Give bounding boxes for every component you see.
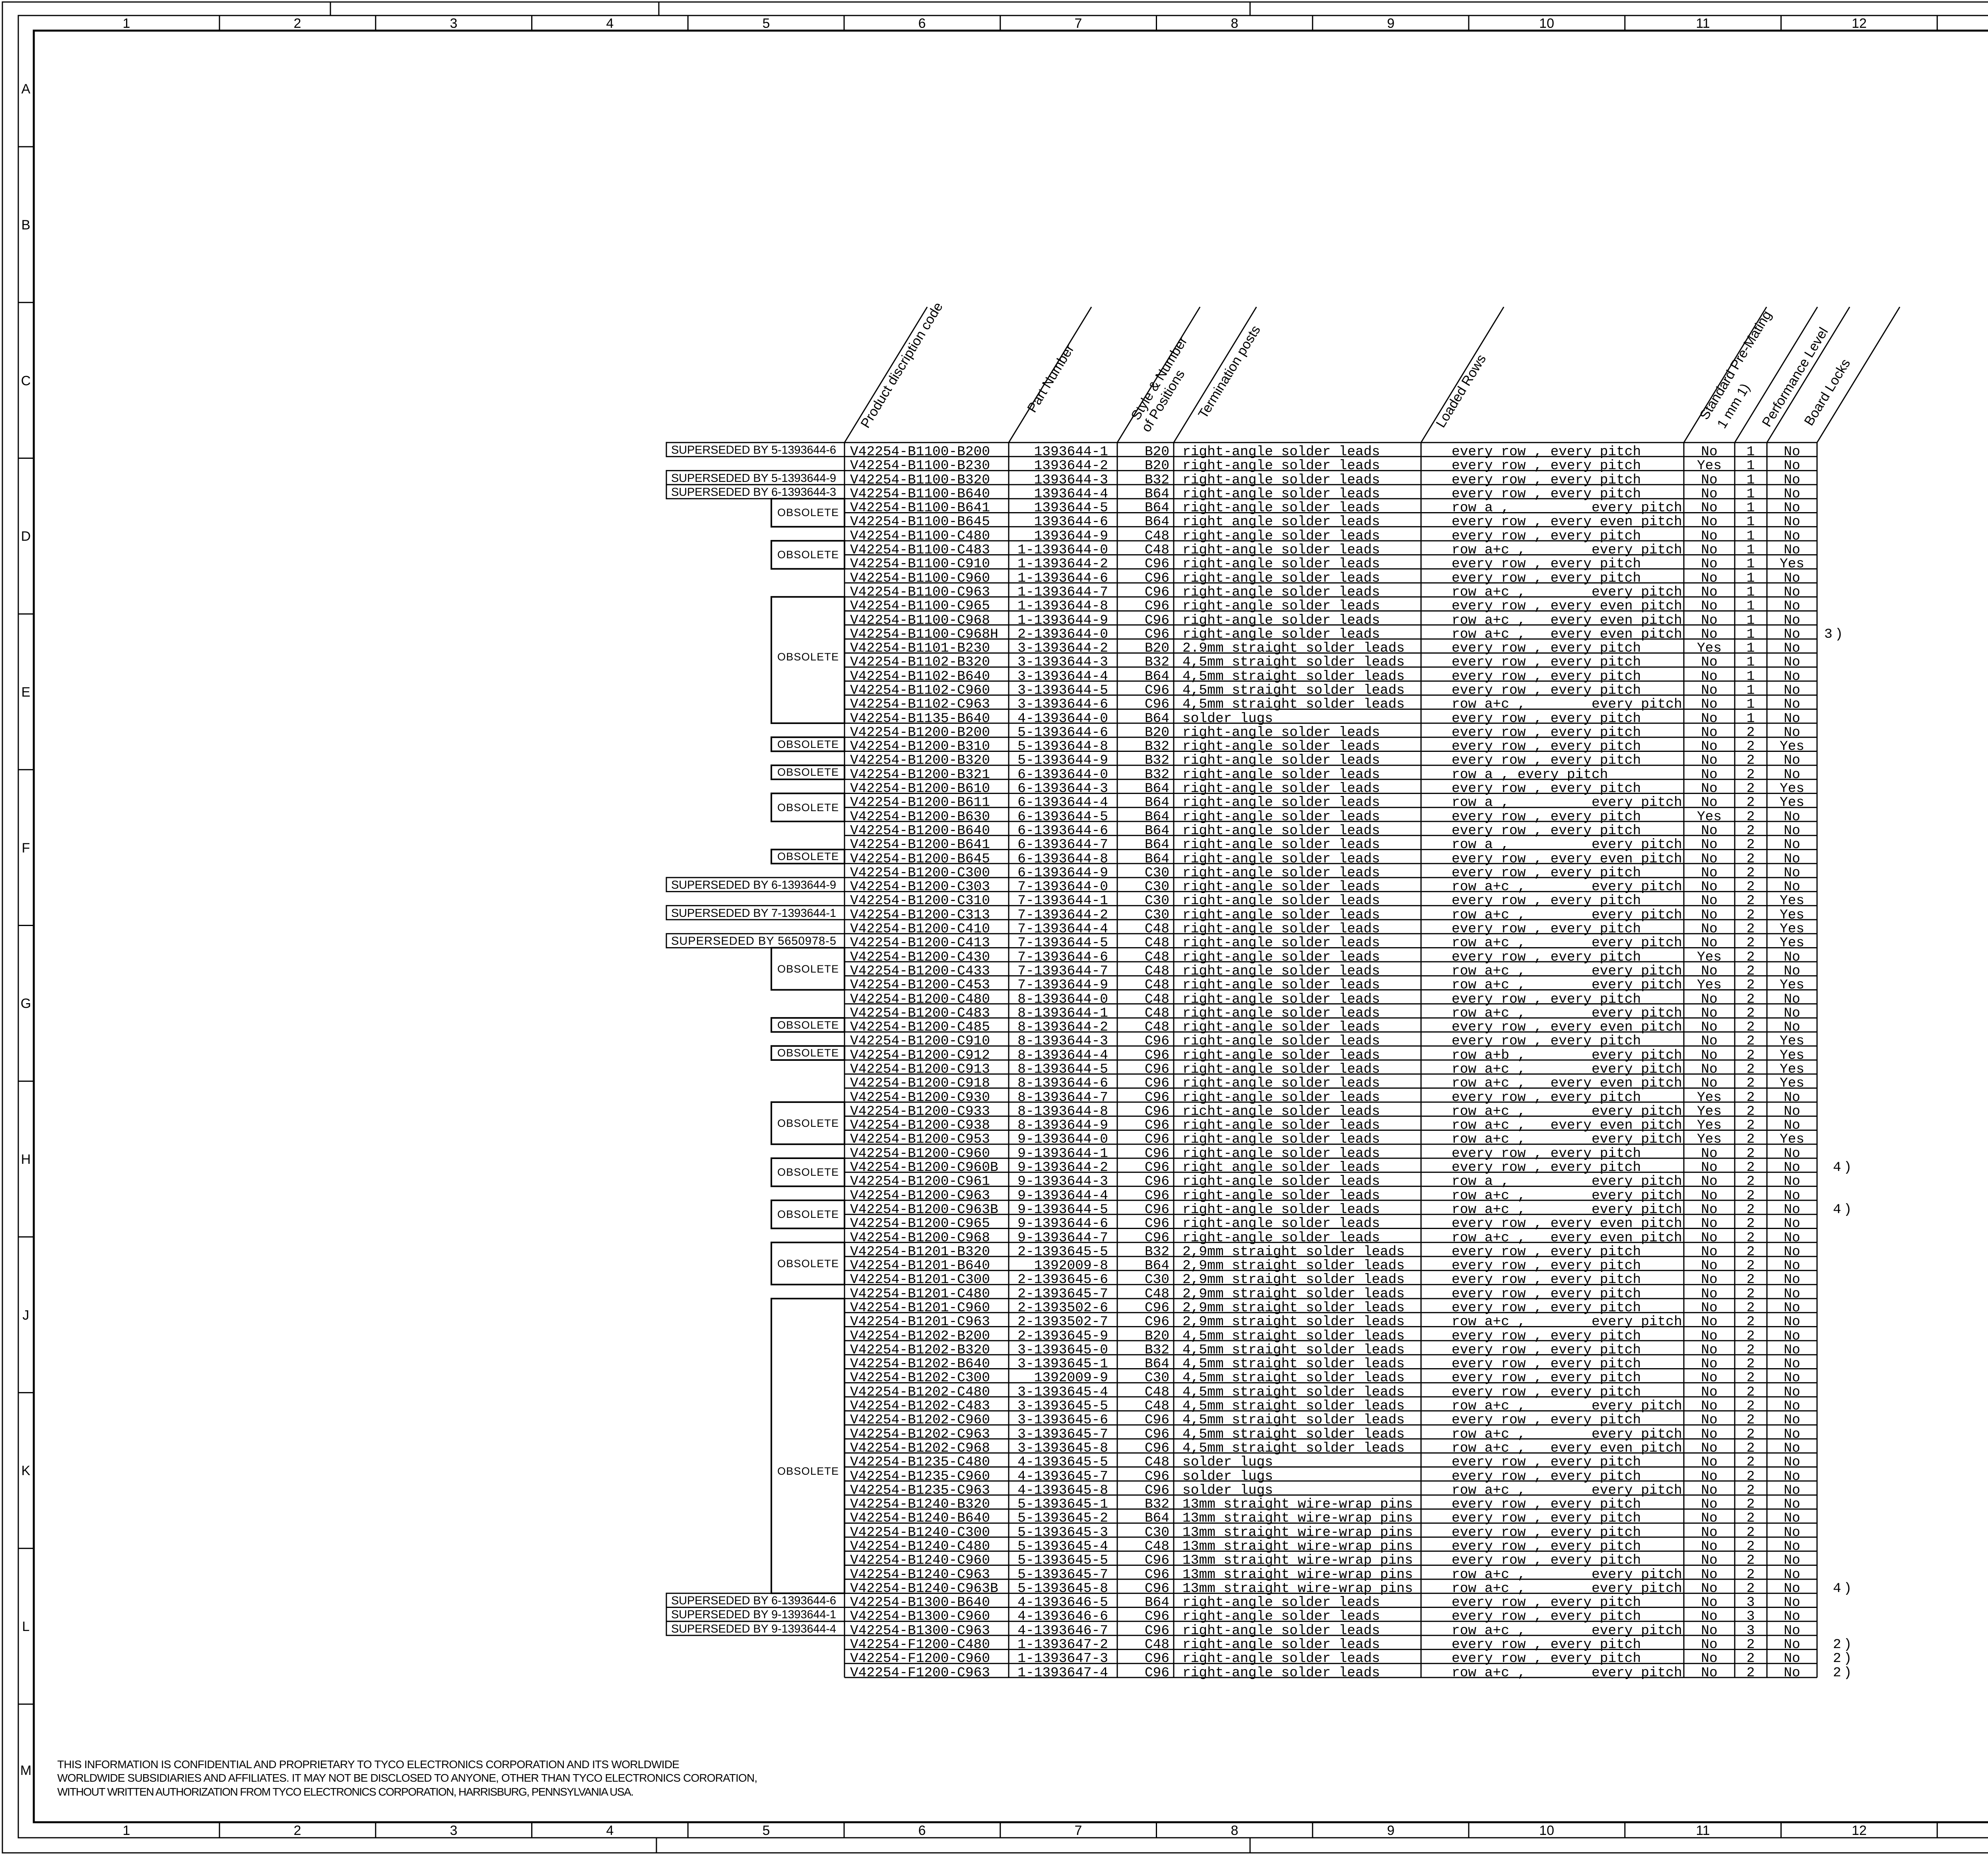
svg-text:1: 1	[1747, 542, 1755, 558]
svg-text:V42254-B1300-C960: V42254-B1300-C960	[850, 1609, 990, 1624]
svg-text:1: 1	[1747, 598, 1755, 614]
svg-text:No: No	[1784, 1160, 1800, 1175]
svg-text:V42254-B1100-C960: V42254-B1100-C960	[850, 571, 990, 586]
svg-text:L: L	[22, 1619, 30, 1634]
svg-text:No: No	[1701, 1258, 1717, 1274]
svg-text:2: 2	[1747, 1469, 1755, 1484]
svg-text:No: No	[1701, 837, 1717, 852]
svg-text:SUPERSEDED BY 5-1393644-6: SUPERSEDED BY 5-1393644-6	[671, 444, 836, 456]
svg-text:No: No	[1701, 1412, 1717, 1428]
svg-text:6-1393644-0: 6-1393644-0	[1017, 767, 1108, 782]
svg-text:No: No	[1701, 851, 1717, 867]
svg-text:No: No	[1784, 1090, 1800, 1105]
svg-text:No: No	[1701, 1595, 1717, 1610]
svg-text:No: No	[1784, 697, 1800, 712]
svg-text:No: No	[1784, 1370, 1800, 1386]
svg-text:No: No	[1784, 1567, 1800, 1582]
svg-text:C96: C96	[1145, 1412, 1169, 1428]
svg-text:row a+c , every pitch: row a+c , every pitch	[1452, 1427, 1682, 1442]
svg-text:No: No	[1701, 514, 1717, 530]
svg-text:No: No	[1784, 542, 1800, 558]
svg-text:1: 1	[1747, 528, 1755, 544]
svg-text:every row , every pitch: every row , every pitch	[1452, 1342, 1641, 1358]
svg-text:7-1393644-6: 7-1393644-6	[1017, 949, 1108, 965]
svg-text:row a+c , every pitch: row a+c , every pitch	[1452, 977, 1682, 993]
svg-text:C96: C96	[1145, 1651, 1169, 1666]
svg-text:No: No	[1701, 1637, 1717, 1652]
svg-text:8-1393644-1: 8-1393644-1	[1017, 1006, 1108, 1021]
svg-text:5-1393645-8: 5-1393645-8	[1017, 1581, 1108, 1596]
svg-text:3-1393644-4: 3-1393644-4	[1017, 669, 1108, 684]
svg-text:V42254-B1200-C313: V42254-B1200-C313	[850, 907, 990, 923]
svg-text:1: 1	[123, 16, 130, 31]
svg-text:right-angle solder leads: right-angle solder leads	[1182, 1132, 1380, 1147]
svg-text:4,5mm straight solder leads: 4,5mm straight solder leads	[1182, 654, 1405, 670]
svg-text:7-1393644-4: 7-1393644-4	[1017, 921, 1108, 937]
svg-text:every row , every pitch: every row , every pitch	[1452, 669, 1641, 684]
svg-text:V42254-F1200-C963: V42254-F1200-C963	[850, 1665, 990, 1681]
svg-text:V42254-B1200-C965: V42254-B1200-C965	[850, 1216, 990, 1231]
svg-text:No: No	[1701, 711, 1717, 726]
svg-text:No: No	[1784, 711, 1800, 726]
svg-text:No: No	[1784, 1216, 1800, 1231]
svg-text:right-angle solder leads: right-angle solder leads	[1182, 1651, 1380, 1666]
svg-text:1-1393647-3: 1-1393647-3	[1017, 1651, 1108, 1666]
svg-text:No: No	[1784, 1258, 1800, 1274]
svg-text:V42254-B1100-C963: V42254-B1100-C963	[850, 584, 990, 600]
svg-text:10: 10	[1539, 1823, 1554, 1838]
svg-text:every row , every pitch: every row , every pitch	[1452, 865, 1641, 881]
svg-text:V42254-B1100-C968H: V42254-B1100-C968H	[850, 627, 998, 642]
svg-text:9-1393644-4: 9-1393644-4	[1017, 1188, 1108, 1204]
svg-text:No: No	[1784, 1398, 1800, 1414]
svg-text:C48: C48	[1145, 1286, 1169, 1302]
svg-text:M: M	[20, 1763, 31, 1778]
svg-text:9: 9	[1387, 16, 1395, 31]
svg-text:No: No	[1701, 739, 1717, 754]
svg-text:No: No	[1701, 1188, 1717, 1204]
svg-text:Yes: Yes	[1697, 458, 1722, 474]
svg-text:right-angle solder leads: right-angle solder leads	[1182, 1637, 1380, 1652]
svg-text:2: 2	[1747, 949, 1755, 965]
svg-text:3-1393645-8: 3-1393645-8	[1017, 1441, 1108, 1456]
svg-text:C96: C96	[1145, 1090, 1169, 1105]
svg-text:2: 2	[1747, 767, 1755, 782]
svg-text:No: No	[1701, 1048, 1717, 1063]
svg-text:right-angle solder leads: right-angle solder leads	[1182, 472, 1380, 488]
svg-text:1393644-4: 1393644-4	[1034, 486, 1108, 502]
svg-text:Yes: Yes	[1697, 1118, 1722, 1133]
svg-text:V42254-B1200-C961: V42254-B1200-C961	[850, 1174, 990, 1189]
svg-text:J: J	[23, 1308, 29, 1323]
svg-text:C96: C96	[1145, 683, 1169, 698]
svg-text:right-angle solder leads: right-angle solder leads	[1182, 1174, 1380, 1189]
svg-text:1: 1	[1747, 571, 1755, 586]
svg-text:13mm straight wire-wrap pins: 13mm straight wire-wrap pins	[1182, 1553, 1413, 1568]
svg-text:No: No	[1784, 1188, 1800, 1204]
svg-text:9-1393644-2: 9-1393644-2	[1017, 1160, 1108, 1175]
svg-text:right-angle solder leads: right-angle solder leads	[1182, 879, 1380, 895]
svg-text:No: No	[1701, 1553, 1717, 1568]
svg-text:2: 2	[1747, 1567, 1755, 1582]
svg-text:V42254-B1200-C912: V42254-B1200-C912	[850, 1048, 990, 1063]
svg-text:6: 6	[918, 1823, 926, 1838]
svg-text:1: 1	[1747, 654, 1755, 670]
svg-text:C96: C96	[1145, 1216, 1169, 1231]
svg-text:2: 2	[1747, 1272, 1755, 1287]
svg-text:OBSOLETE: OBSOLETE	[777, 1258, 839, 1270]
svg-text:right-angle solder leads: right-angle solder leads	[1182, 1609, 1380, 1624]
svg-text:2: 2	[1747, 1398, 1755, 1414]
svg-text:No: No	[1701, 1033, 1717, 1049]
svg-text:V42254-B1202-C960: V42254-B1202-C960	[850, 1412, 990, 1428]
svg-text:No: No	[1784, 1609, 1800, 1624]
svg-text:9-1393644-1: 9-1393644-1	[1017, 1146, 1108, 1161]
svg-text:C48: C48	[1145, 1019, 1169, 1035]
svg-text:2: 2	[1747, 1202, 1755, 1217]
svg-text:Yes: Yes	[1780, 921, 1804, 937]
svg-text:1-1393644-0: 1-1393644-0	[1017, 542, 1108, 558]
svg-text:V42254-B1202-C300: V42254-B1202-C300	[850, 1370, 990, 1386]
svg-text:row a , every pitch: row a , every pitch	[1452, 837, 1682, 852]
svg-text:2-1393644-0: 2-1393644-0	[1017, 627, 1108, 642]
svg-text:B64: B64	[1145, 851, 1169, 867]
svg-text:C96: C96	[1145, 1174, 1169, 1189]
svg-text:2: 2	[1747, 1033, 1755, 1049]
svg-text:4-1393645-5: 4-1393645-5	[1017, 1454, 1108, 1470]
svg-text:every row , every pitch: every row , every pitch	[1452, 571, 1641, 586]
svg-text:No: No	[1701, 1006, 1717, 1021]
svg-text:right-angle solder leads: right-angle solder leads	[1182, 865, 1380, 881]
svg-text:9-1393644-6: 9-1393644-6	[1017, 1216, 1108, 1231]
svg-text:No: No	[1701, 1244, 1717, 1260]
svg-text:V42254-B1200-C910: V42254-B1200-C910	[850, 1033, 990, 1049]
svg-text:row a+c , every pitch: row a+c , every pitch	[1452, 1483, 1682, 1498]
svg-text:No: No	[1701, 1019, 1717, 1035]
svg-text:C48: C48	[1145, 949, 1169, 965]
svg-text:4,5mm straight solder leads: 4,5mm straight solder leads	[1182, 1356, 1405, 1372]
svg-text:4,5mm straight solder leads: 4,5mm straight solder leads	[1182, 1427, 1405, 1442]
svg-text:V42254-B1200-C960: V42254-B1200-C960	[850, 1146, 990, 1161]
svg-text:2: 2	[1747, 865, 1755, 881]
svg-text:OBSOLETE: OBSOLETE	[777, 738, 839, 750]
svg-text:right-angle solder leads: right-angle solder leads	[1182, 753, 1380, 768]
svg-text:No: No	[1784, 683, 1800, 698]
svg-text:V42254-B1200-C960B: V42254-B1200-C960B	[850, 1160, 998, 1175]
svg-text:right-angle solder leads: right-angle solder leads	[1182, 1230, 1380, 1246]
svg-text:B64: B64	[1145, 1356, 1169, 1372]
svg-text:V42254-B1100-B640: V42254-B1100-B640	[850, 486, 990, 502]
svg-text:Yes: Yes	[1697, 641, 1722, 656]
svg-text:every row , every even pitch: every row , every even pitch	[1452, 1019, 1682, 1035]
svg-text:1: 1	[1747, 556, 1755, 572]
svg-text:F: F	[22, 841, 30, 856]
svg-text:7-1393644-7: 7-1393644-7	[1017, 963, 1108, 979]
svg-text:V42254-B1201-C963: V42254-B1201-C963	[850, 1314, 990, 1330]
svg-text:V42254-B1202-C963: V42254-B1202-C963	[850, 1427, 990, 1442]
svg-text:B64: B64	[1145, 823, 1169, 839]
svg-text:right-angle solder leads: right-angle solder leads	[1182, 458, 1380, 474]
svg-text:V42254-B1200-B200: V42254-B1200-B200	[850, 725, 990, 740]
svg-text:2-1393645-6: 2-1393645-6	[1017, 1272, 1108, 1287]
svg-text:B64: B64	[1145, 837, 1169, 852]
svg-text:5-1393645-3: 5-1393645-3	[1017, 1525, 1108, 1540]
svg-text:No: No	[1784, 1412, 1800, 1428]
svg-text:6-1393644-3: 6-1393644-3	[1017, 781, 1108, 796]
svg-text:C96: C96	[1145, 1567, 1169, 1582]
svg-text:Yes: Yes	[1697, 1090, 1722, 1105]
svg-text:right-angle solder leads: right-angle solder leads	[1182, 500, 1380, 516]
svg-text:C30: C30	[1145, 907, 1169, 923]
svg-text:2: 2	[1747, 1384, 1755, 1400]
svg-text:2: 2	[1747, 1553, 1755, 1568]
svg-text:5-1393644-9: 5-1393644-9	[1017, 753, 1108, 768]
svg-text:C96: C96	[1145, 1118, 1169, 1133]
svg-text:every row , every pitch: every row , every pitch	[1452, 949, 1641, 965]
svg-text:4-1393645-7: 4-1393645-7	[1017, 1469, 1108, 1484]
svg-text:B20: B20	[1145, 458, 1169, 474]
svg-text:C96: C96	[1145, 1314, 1169, 1330]
svg-text:No: No	[1701, 1427, 1717, 1442]
svg-text:C96: C96	[1145, 1202, 1169, 1217]
svg-text:4-1393645-8: 4-1393645-8	[1017, 1483, 1108, 1498]
svg-text:No: No	[1784, 514, 1800, 530]
svg-text:right-angle solder leads: right-angle solder leads	[1182, 837, 1380, 852]
svg-text:right-angle solder leads: right-angle solder leads	[1182, 739, 1380, 754]
svg-text:6: 6	[918, 16, 926, 31]
svg-text:V42254-B1102-C963: V42254-B1102-C963	[850, 697, 990, 712]
svg-text:5-1393645-2: 5-1393645-2	[1017, 1511, 1108, 1526]
svg-text:2-1393645-9: 2-1393645-9	[1017, 1328, 1108, 1344]
svg-text:SUPERSEDED BY 6-1393644-3: SUPERSEDED BY 6-1393644-3	[671, 486, 836, 499]
svg-text:V42254-B1235-C960: V42254-B1235-C960	[850, 1469, 990, 1484]
svg-text:every row , every pitch: every row , every pitch	[1452, 1384, 1641, 1400]
svg-text:every row , every pitch: every row , every pitch	[1452, 472, 1641, 488]
svg-text:1393644-9: 1393644-9	[1034, 528, 1108, 544]
svg-text:V42254-B1200-C453: V42254-B1200-C453	[850, 977, 990, 993]
svg-text:right-angle solder leads: right-angle solder leads	[1182, 935, 1380, 951]
svg-text:No: No	[1701, 528, 1717, 544]
svg-text:No: No	[1784, 669, 1800, 684]
svg-text:1: 1	[1747, 683, 1755, 698]
svg-text:V42254-B1300-C963: V42254-B1300-C963	[850, 1623, 990, 1639]
svg-text:3-1393645-1: 3-1393645-1	[1017, 1356, 1108, 1372]
svg-text:OBSOLETE: OBSOLETE	[777, 766, 839, 778]
svg-text:V42254-B1200-B321: V42254-B1200-B321	[850, 767, 990, 782]
svg-text:right-angle solder leads: right-angle solder leads	[1182, 627, 1380, 642]
svg-text:4,5mm straight solder leads: 4,5mm straight solder leads	[1182, 1342, 1405, 1358]
svg-text:B32: B32	[1145, 1497, 1169, 1512]
svg-text:every row , every pitch: every row , every pitch	[1452, 921, 1641, 937]
svg-text:No: No	[1784, 571, 1800, 586]
svg-text:No: No	[1701, 1441, 1717, 1456]
svg-text:No: No	[1784, 809, 1800, 825]
svg-text:B32: B32	[1145, 1244, 1169, 1260]
svg-text:V42254-B1200-C938: V42254-B1200-C938	[850, 1118, 990, 1133]
svg-text:2: 2	[1747, 1230, 1755, 1246]
svg-text:2: 2	[1747, 1497, 1755, 1512]
svg-text:8-1393644-6: 8-1393644-6	[1017, 1076, 1108, 1091]
svg-text:2-1393502-6: 2-1393502-6	[1017, 1300, 1108, 1316]
svg-text:No: No	[1701, 654, 1717, 670]
svg-text:2: 2	[1747, 1160, 1755, 1175]
svg-text:Yes: Yes	[1780, 795, 1804, 810]
svg-text:B64: B64	[1145, 1258, 1169, 1274]
svg-text:C96: C96	[1145, 1132, 1169, 1147]
svg-text:C96: C96	[1145, 556, 1169, 572]
svg-text:V42254-B1235-C963: V42254-B1235-C963	[850, 1483, 990, 1498]
svg-text:No: No	[1784, 1272, 1800, 1287]
svg-text:C96: C96	[1145, 1483, 1169, 1498]
svg-text:B20: B20	[1145, 641, 1169, 656]
svg-text:No: No	[1701, 1342, 1717, 1358]
svg-text:No: No	[1701, 1567, 1717, 1582]
svg-text:No: No	[1784, 641, 1800, 656]
svg-text:9-1393644-0: 9-1393644-0	[1017, 1132, 1108, 1147]
svg-text:Yes: Yes	[1780, 739, 1804, 754]
svg-text:every row , every pitch: every row , every pitch	[1452, 1553, 1641, 1568]
svg-text:2: 2	[1747, 795, 1755, 810]
svg-text:2: 2	[1747, 851, 1755, 867]
svg-text:V42254-B1202-B200: V42254-B1202-B200	[850, 1328, 990, 1344]
svg-text:No: No	[1701, 753, 1717, 768]
svg-text:No: No	[1784, 1104, 1800, 1119]
svg-text:row a+c , every pitch: row a+c , every pitch	[1452, 879, 1682, 895]
svg-text:2,9mm straight solder leads: 2,9mm straight solder leads	[1182, 1244, 1405, 1260]
svg-text:No: No	[1701, 767, 1717, 782]
svg-text:7-1393644-5: 7-1393644-5	[1017, 935, 1108, 951]
svg-text:2: 2	[1747, 739, 1755, 754]
svg-text:2: 2	[1747, 1076, 1755, 1091]
svg-text:6-1393644-4: 6-1393644-4	[1017, 795, 1108, 810]
svg-text:OBSOLETE: OBSOLETE	[777, 549, 839, 561]
svg-text:C30: C30	[1145, 1272, 1169, 1287]
svg-text:1: 1	[1747, 514, 1755, 530]
svg-text:13mm straight wire-wrap pins: 13mm straight wire-wrap pins	[1182, 1567, 1413, 1582]
svg-text:3: 3	[450, 16, 458, 31]
svg-text:row a+c , every even pitch: row a+c , every even pitch	[1452, 1441, 1682, 1456]
svg-text:row a+c , every pitch: row a+c , every pitch	[1452, 1623, 1682, 1639]
svg-text:right-angle solder leads: right-angle solder leads	[1182, 571, 1380, 586]
svg-text:2: 2	[1747, 1427, 1755, 1442]
svg-text:No: No	[1784, 458, 1800, 474]
svg-text:V42254-B1200-C483: V42254-B1200-C483	[850, 1006, 990, 1021]
svg-text:No: No	[1701, 486, 1717, 502]
svg-text:C96: C96	[1145, 1076, 1169, 1091]
svg-text:every row , every pitch: every row , every pitch	[1452, 1090, 1641, 1105]
svg-text:2: 2	[1747, 1342, 1755, 1358]
svg-text:OBSOLETE: OBSOLETE	[777, 802, 839, 814]
svg-text:13mm straight wire-wrap pins: 13mm straight wire-wrap pins	[1182, 1525, 1413, 1540]
svg-text:2,9mm straight solder leads: 2,9mm straight solder leads	[1182, 1286, 1405, 1302]
svg-text:9-1393644-7: 9-1393644-7	[1017, 1230, 1108, 1246]
svg-text:8-1393644-7: 8-1393644-7	[1017, 1090, 1108, 1105]
svg-text:V42254-B1240-C963B: V42254-B1240-C963B	[850, 1581, 998, 1596]
svg-text:B32: B32	[1145, 1342, 1169, 1358]
svg-text:solder lugs: solder lugs	[1182, 1454, 1273, 1470]
svg-text:No: No	[1701, 1286, 1717, 1302]
svg-text:right-angle solder leads: right-angle solder leads	[1182, 1188, 1380, 1204]
svg-text:Yes: Yes	[1780, 1062, 1804, 1077]
svg-text:G: G	[21, 996, 31, 1011]
svg-text:No: No	[1701, 1623, 1717, 1639]
svg-text:V42254-B1200-C410: V42254-B1200-C410	[850, 921, 990, 937]
svg-text:9-1393644-5: 9-1393644-5	[1017, 1202, 1108, 1217]
svg-text:5-1393644-6: 5-1393644-6	[1017, 725, 1108, 740]
svg-text:every row , every pitch: every row , every pitch	[1452, 1469, 1641, 1484]
svg-text:every row , every pitch: every row , every pitch	[1452, 1651, 1641, 1666]
svg-text:B20: B20	[1145, 444, 1169, 460]
svg-text:every row , every pitch: every row , every pitch	[1452, 809, 1641, 825]
svg-text:B64: B64	[1145, 711, 1169, 726]
svg-text:3-1393644-5: 3-1393644-5	[1017, 683, 1108, 698]
svg-text:4,5mm straight solder leads: 4,5mm straight solder leads	[1182, 1412, 1405, 1428]
svg-text:No: No	[1784, 1384, 1800, 1400]
svg-text:every row , every pitch: every row , every pitch	[1452, 1412, 1641, 1428]
svg-text:2,9mm straight solder leads: 2,9mm straight solder leads	[1182, 1272, 1405, 1287]
svg-text:No: No	[1701, 1174, 1717, 1189]
svg-text:OBSOLETE: OBSOLETE	[777, 1019, 839, 1031]
svg-text:V42254-B1200-B630: V42254-B1200-B630	[850, 809, 990, 825]
svg-text:every row , every pitch: every row , every pitch	[1452, 528, 1641, 544]
svg-text:6-1393644-5: 6-1393644-5	[1017, 809, 1108, 825]
svg-text:1393644-1: 1393644-1	[1034, 444, 1108, 460]
svg-text:1-1393644-7: 1-1393644-7	[1017, 584, 1108, 600]
svg-text:V42254-B1100-B230: V42254-B1100-B230	[850, 458, 990, 474]
svg-text:No: No	[1784, 992, 1800, 1007]
svg-text:2: 2	[1747, 725, 1755, 740]
svg-text:No: No	[1784, 1454, 1800, 1470]
svg-text:every row , every pitch: every row , every pitch	[1452, 1370, 1641, 1386]
svg-text:1: 1	[1747, 500, 1755, 516]
svg-text:No: No	[1701, 1230, 1717, 1246]
svg-text:No: No	[1784, 1581, 1800, 1596]
svg-text:solder lugs: solder lugs	[1182, 711, 1273, 726]
svg-text:No: No	[1784, 1174, 1800, 1189]
svg-text:right-angle solder leads: right-angle solder leads	[1182, 1076, 1380, 1091]
svg-text:B32: B32	[1145, 753, 1169, 768]
svg-text:1: 1	[1747, 444, 1755, 460]
svg-text:Yes: Yes	[1697, 977, 1722, 993]
svg-text:8-1393644-4: 8-1393644-4	[1017, 1048, 1108, 1063]
svg-text:C96: C96	[1145, 598, 1169, 614]
svg-text:right-angle solder leads: right-angle solder leads	[1182, 613, 1380, 628]
svg-text:1: 1	[1747, 458, 1755, 474]
svg-text:row a+c , every pitch: row a+c , every pitch	[1452, 1104, 1682, 1119]
svg-text:right-angle solder leads: right-angle solder leads	[1182, 767, 1380, 782]
svg-text:No: No	[1784, 486, 1800, 502]
svg-text:11: 11	[1696, 1823, 1710, 1838]
svg-text:C96: C96	[1145, 697, 1169, 712]
svg-text:Yes: Yes	[1780, 1033, 1804, 1049]
svg-text:2: 2	[1747, 1146, 1755, 1161]
svg-text:3-1393644-2: 3-1393644-2	[1017, 641, 1108, 656]
svg-text:WORLDWIDE SUBSIDIARIES AND AFF: WORLDWIDE SUBSIDIARIES AND AFFILIATES. I…	[57, 1772, 757, 1784]
svg-text:No: No	[1784, 1665, 1800, 1681]
svg-text:5-1393644-8: 5-1393644-8	[1017, 739, 1108, 754]
svg-text:1393644-2: 1393644-2	[1034, 458, 1108, 474]
svg-text:B64: B64	[1145, 1511, 1169, 1526]
svg-text:No: No	[1701, 472, 1717, 488]
svg-text:1-1393647-2: 1-1393647-2	[1017, 1637, 1108, 1652]
svg-text:V42254-B1300-B640: V42254-B1300-B640	[850, 1595, 990, 1610]
svg-text:C: C	[21, 373, 31, 388]
svg-text:every row , every pitch: every row , every pitch	[1452, 753, 1641, 768]
svg-text:right-angle solder leads: right-angle solder leads	[1182, 809, 1380, 825]
svg-text:No: No	[1784, 1006, 1800, 1021]
svg-text:right-angle solder leads: right-angle solder leads	[1182, 1033, 1380, 1049]
svg-text:row a+c , every pitch: row a+c , every pitch	[1452, 935, 1682, 951]
